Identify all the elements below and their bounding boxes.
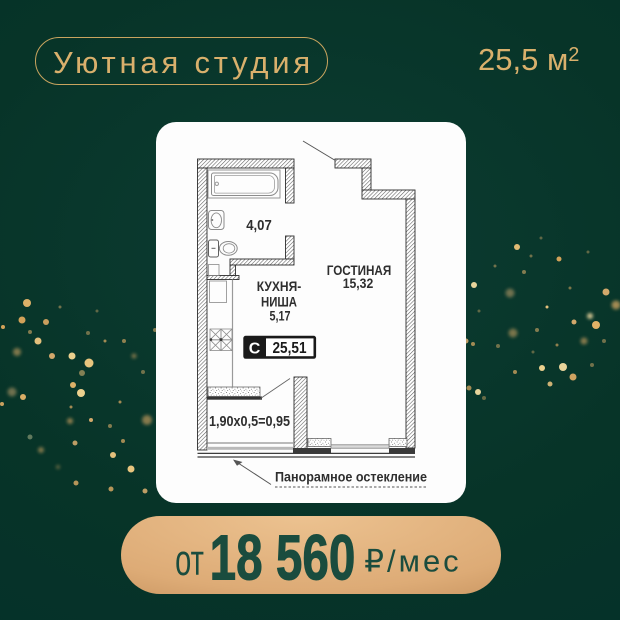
svg-text:КУХНЯ-: КУХНЯ-: [257, 278, 302, 294]
svg-text:15,32: 15,32: [343, 275, 374, 291]
svg-text:5,17: 5,17: [270, 308, 291, 324]
svg-text:18 560: 18 560: [210, 522, 356, 593]
svg-text:₽/мес: ₽/мес: [364, 544, 461, 579]
svg-text:Панорамное остекление: Панорамное остекление: [275, 469, 427, 485]
svg-text:от: от: [175, 535, 204, 585]
svg-text:4,07: 4,07: [246, 217, 272, 234]
svg-text:25,51: 25,51: [273, 340, 307, 357]
svg-text:С: С: [249, 341, 261, 358]
svg-text:1,90х0,5=0,95: 1,90х0,5=0,95: [209, 414, 290, 430]
